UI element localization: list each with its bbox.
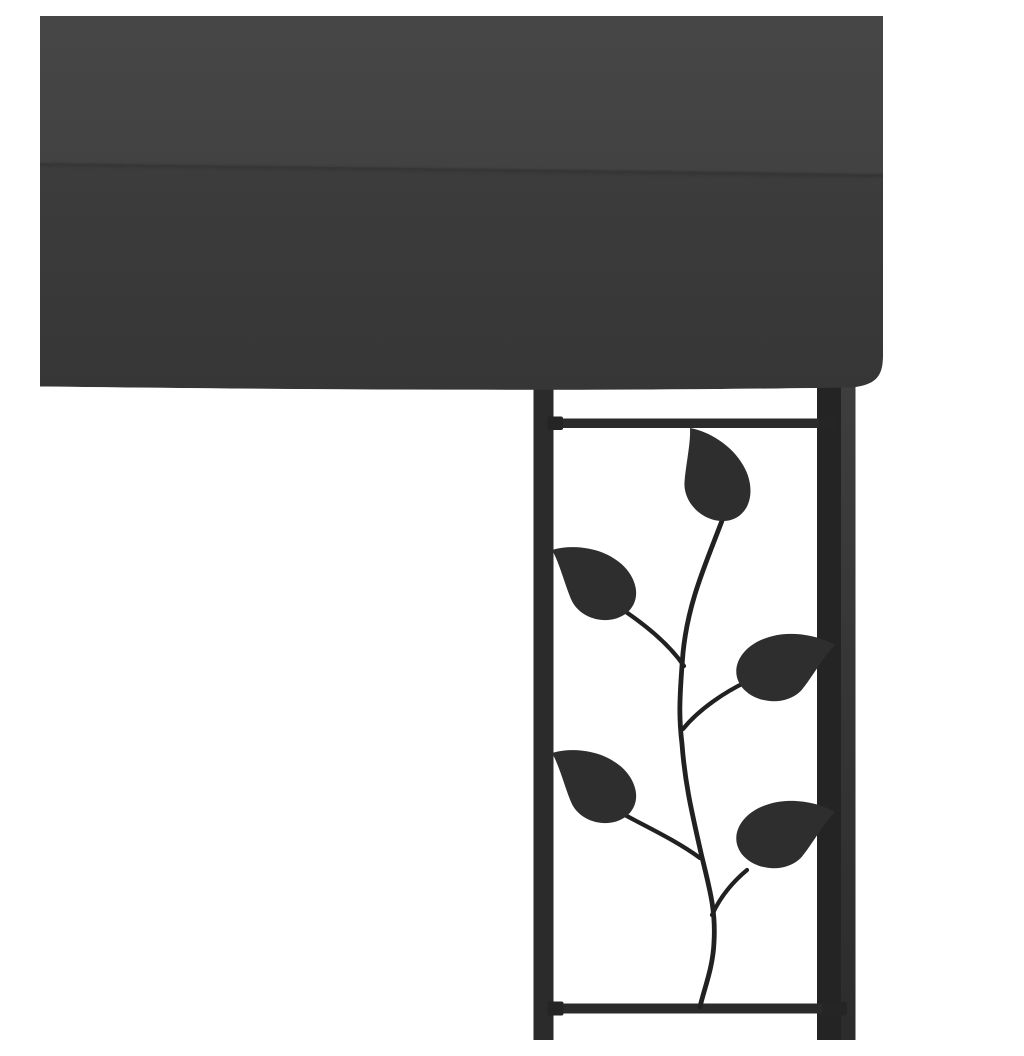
top-crossbar-right-cap — [819, 417, 837, 431]
canopy — [40, 16, 888, 390]
product-photo-gazebo-corner — [40, 16, 1024, 1040]
gazebo-corner-illustration — [40, 16, 1024, 1040]
bottom-crossbar-right-cap — [822, 1002, 847, 1016]
right-post-side-face — [841, 378, 856, 1040]
top-crossbar-rail — [550, 419, 837, 429]
bottom-crossbar-left-cap — [548, 1002, 564, 1016]
left-upright-post — [534, 387, 554, 1040]
top-crossbar — [548, 417, 837, 431]
bottom-crossbar-rail — [550, 1004, 842, 1014]
canopy-roof-panel — [40, 16, 883, 174]
right-post-front-face — [817, 378, 842, 1040]
bottom-crossbar — [548, 1002, 848, 1016]
top-crossbar-left-cap — [548, 417, 564, 431]
